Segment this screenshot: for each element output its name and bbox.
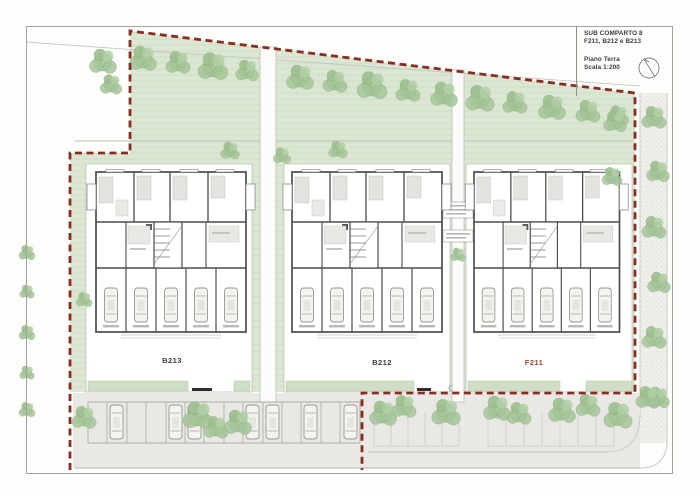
building-label-b213: B213 (150, 356, 194, 365)
hedge-strips (88, 381, 632, 391)
title-block: SUB COMPARTO 8 F211, B212 e B213 Piano T… (576, 26, 672, 96)
scale-label: Scala 1:200 (584, 64, 672, 72)
floor-label: Piano Terra (584, 56, 672, 64)
driveway-marker (192, 388, 212, 391)
driveway-marker (417, 388, 431, 391)
building-f211 (465, 170, 628, 339)
building-b212 (283, 170, 451, 339)
building-b213 (87, 170, 255, 339)
buildings-subtitle: F211, B212 e B213 (584, 38, 672, 46)
site-plan-page: SUB COMPARTO 8 F211, B212 e B213 Piano T… (0, 0, 700, 495)
project-title: SUB COMPARTO 8 (584, 30, 672, 38)
building-label-f211: F211 (512, 358, 556, 367)
buildings (87, 170, 628, 339)
building-label-b212: B212 (360, 358, 404, 367)
